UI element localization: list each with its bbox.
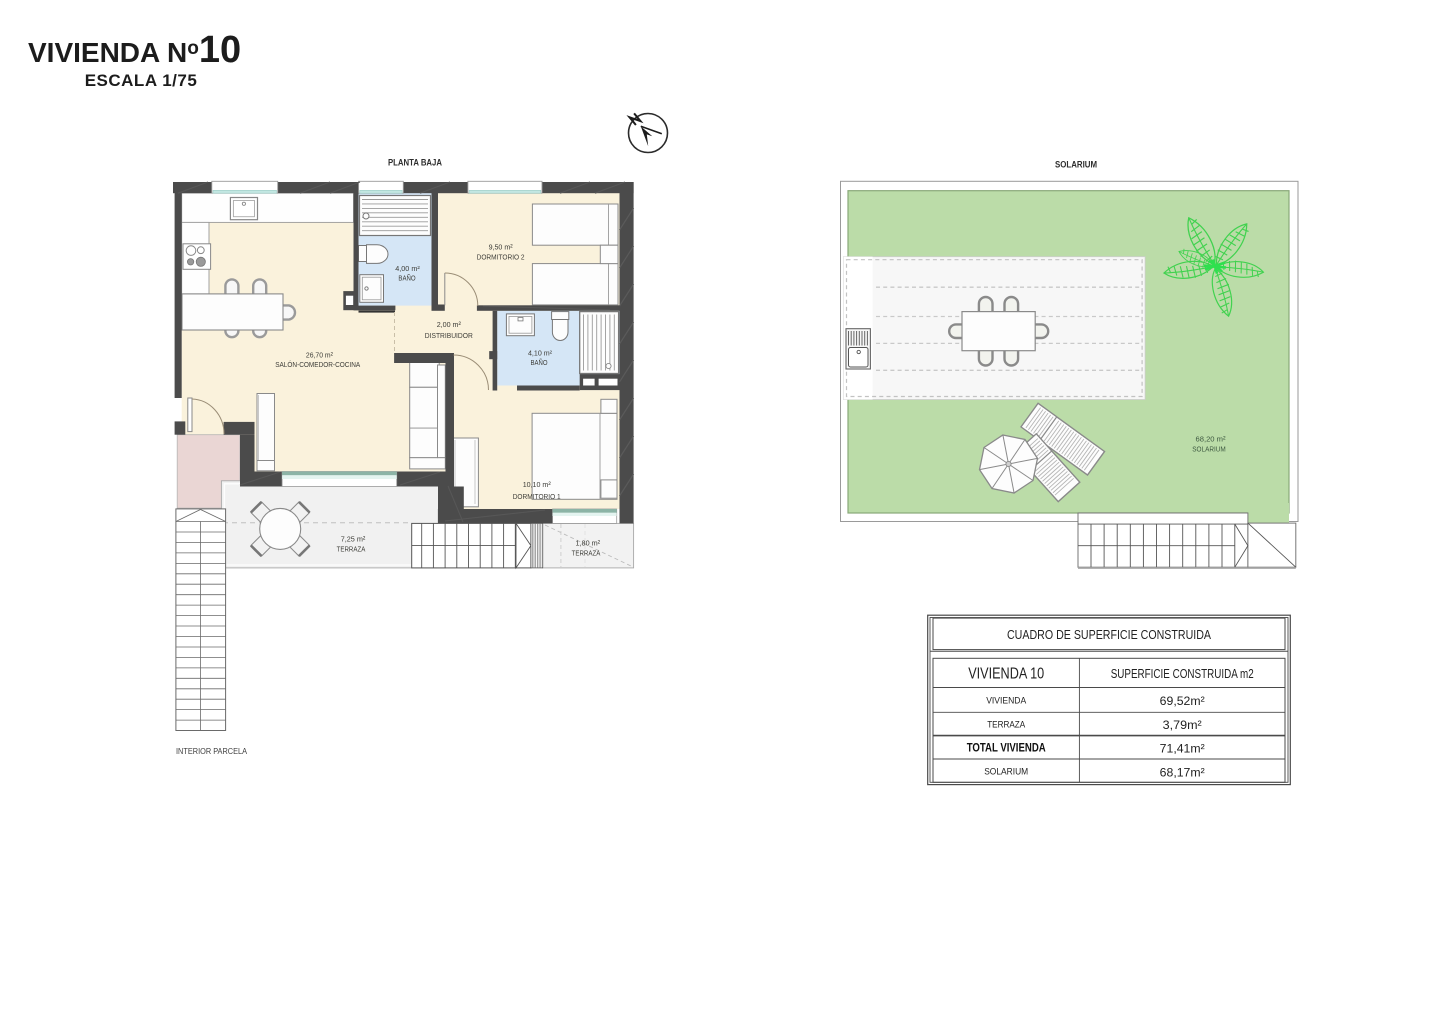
svg-text:SALÓN-COMEDOR-COCINA: SALÓN-COMEDOR-COCINA	[275, 360, 361, 369]
svg-text:2,00 m²: 2,00 m²	[437, 320, 462, 329]
svg-text:26,70 m²: 26,70 m²	[306, 351, 333, 360]
svg-text:SUPERFICIE CONSTRUIDA m2: SUPERFICIE CONSTRUIDA m2	[1111, 667, 1254, 681]
svg-text:DISTRIBUIDOR: DISTRIBUIDOR	[425, 331, 473, 340]
svg-text:TERRAZA: TERRAZA	[572, 548, 601, 557]
svg-text:9,50 m²: 9,50 m²	[489, 243, 513, 252]
svg-text:VIVIENDA 10: VIVIENDA 10	[968, 666, 1044, 683]
svg-text:4,10 m²: 4,10 m²	[528, 349, 553, 358]
svg-text:68,17m²: 68,17m²	[1160, 766, 1205, 780]
svg-text:PLANTA BAJA: PLANTA BAJA	[388, 158, 442, 168]
svg-text:1,80 m²: 1,80 m²	[576, 539, 601, 548]
svg-text:7,25 m²: 7,25 m²	[341, 535, 366, 544]
svg-text:BAÑO: BAÑO	[531, 358, 548, 367]
svg-text:SOLARIUM: SOLARIUM	[984, 767, 1028, 778]
svg-text:TERRAZA: TERRAZA	[337, 544, 366, 553]
svg-text:SOLARIUM: SOLARIUM	[1055, 160, 1097, 170]
svg-text:CUADRO DE SUPERFICIE CONSTRUID: CUADRO DE SUPERFICIE CONSTRUIDA	[1007, 627, 1211, 642]
svg-text:3,79m²: 3,79m²	[1163, 718, 1202, 732]
svg-text:69,52m²: 69,52m²	[1160, 694, 1205, 708]
svg-text:4,00 m²: 4,00 m²	[395, 264, 420, 273]
svg-text:BAÑO: BAÑO	[398, 273, 415, 282]
svg-text:TOTAL VIVIENDA: TOTAL VIVIENDA	[967, 741, 1046, 755]
svg-text:TERRAZA: TERRAZA	[987, 720, 1026, 731]
svg-text:10,10 m²: 10,10 m²	[523, 480, 551, 489]
svg-text:VIVIENDA: VIVIENDA	[986, 696, 1027, 707]
svg-text:DORMITORIO 1: DORMITORIO 1	[513, 492, 561, 501]
svg-text:INTERIOR PARCELA: INTERIOR PARCELA	[176, 747, 248, 756]
svg-text:68,20 m²: 68,20 m²	[1196, 435, 1226, 444]
svg-text:SOLARIUM: SOLARIUM	[1192, 444, 1226, 453]
svg-text:ESCALA 1/75: ESCALA 1/75	[85, 71, 198, 90]
svg-text:DORMITORIO 2: DORMITORIO 2	[477, 252, 525, 261]
svg-text:71,41m²: 71,41m²	[1160, 742, 1205, 756]
svg-text:VIVIENDA No10: VIVIENDA No10	[28, 29, 241, 71]
